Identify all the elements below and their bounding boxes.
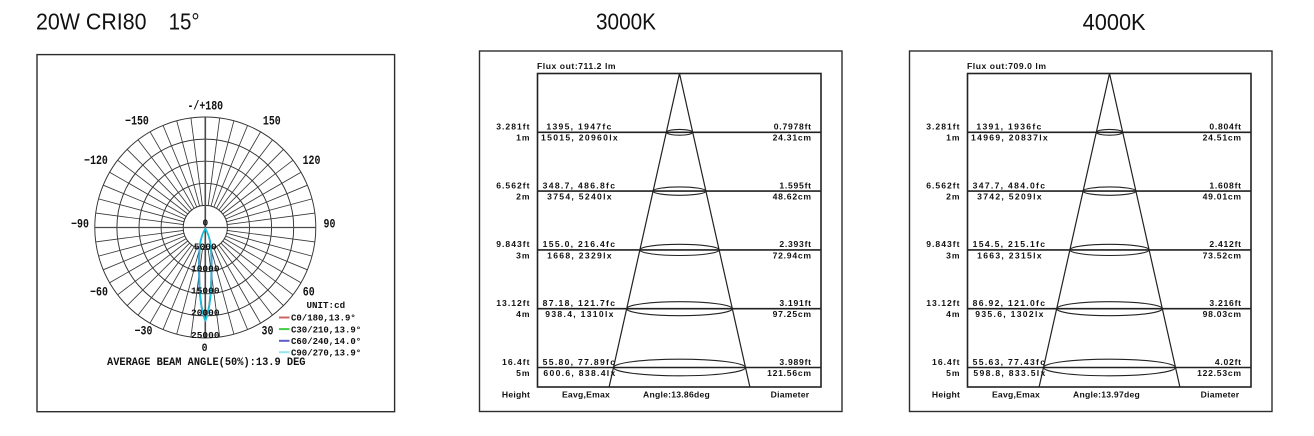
svg-text:6.562ft: 6.562ft [496, 180, 530, 190]
svg-text:1663, 2315lx: 1663, 2315lx [977, 250, 1043, 260]
svg-text:1m: 1m [946, 133, 960, 143]
svg-text:13.12ft: 13.12ft [926, 298, 960, 308]
svg-text:13.12ft: 13.12ft [496, 298, 530, 308]
svg-text:Eavg,Emax: Eavg,Emax [562, 390, 610, 400]
svg-text:Height: Height [502, 390, 530, 400]
svg-text:UNIT:cd: UNIT:cd [307, 300, 346, 311]
svg-text:3.281ft: 3.281ft [496, 122, 530, 132]
svg-text:15015, 20960lx: 15015, 20960lx [541, 133, 619, 143]
svg-text:0: 0 [202, 343, 208, 355]
svg-text:87.18, 121.7fc: 87.18, 121.7fc [543, 298, 617, 308]
svg-text:-/+180: -/+180 [188, 99, 224, 113]
svg-text:154.5, 215.1fc: 154.5, 215.1fc [973, 239, 1047, 249]
svg-text:20000: 20000 [191, 308, 220, 319]
svg-text:86.92, 121.0fc: 86.92, 121.0fc [973, 298, 1047, 308]
svg-text:55.80, 77.89fc: 55.80, 77.89fc [543, 357, 617, 367]
svg-text:−120: −120 [84, 154, 108, 168]
svg-text:3742, 5209lx: 3742, 5209lx [977, 192, 1043, 202]
svg-text:15000: 15000 [191, 286, 220, 297]
svg-text:4m: 4m [516, 309, 530, 319]
svg-text:Diameter: Diameter [1201, 390, 1240, 400]
svg-text:4m: 4m [946, 309, 960, 319]
svg-text:0: 0 [202, 218, 208, 229]
svg-text:2m: 2m [946, 192, 960, 202]
svg-text:5m: 5m [516, 368, 530, 378]
svg-text:122.53cm: 122.53cm [1197, 368, 1242, 378]
svg-text:16.4ft: 16.4ft [932, 357, 960, 367]
svg-text:5000: 5000 [194, 241, 217, 252]
svg-text:1.608ft: 1.608ft [1209, 180, 1241, 190]
svg-text:Eavg,Emax: Eavg,Emax [992, 390, 1040, 400]
svg-text:1391, 1936fc: 1391, 1936fc [976, 122, 1042, 132]
svg-text:3.216ft: 3.216ft [1209, 298, 1241, 308]
svg-text:Flux out:711.2 lm: Flux out:711.2 lm [537, 61, 616, 71]
svg-text:Angle:13.86deg: Angle:13.86deg [643, 390, 710, 400]
svg-text:55.63, 77.43fc: 55.63, 77.43fc [973, 357, 1047, 367]
svg-text:1668, 2329lx: 1668, 2329lx [547, 250, 613, 260]
svg-text:C30/210,13.9°: C30/210,13.9° [291, 325, 361, 335]
svg-text:72.94cm: 72.94cm [773, 250, 812, 260]
svg-text:6.562ft: 6.562ft [926, 180, 960, 190]
svg-text:60: 60 [303, 285, 315, 299]
svg-text:1m: 1m [516, 133, 530, 143]
svg-text:9.843ft: 9.843ft [496, 239, 530, 249]
svg-text:−90: −90 [71, 217, 89, 231]
svg-text:24.51cm: 24.51cm [1203, 133, 1242, 143]
svg-text:73.52cm: 73.52cm [1203, 250, 1242, 260]
svg-text:14969, 20837lx: 14969, 20837lx [971, 133, 1049, 143]
svg-text:5m: 5m [946, 368, 960, 378]
svg-text:Diameter: Diameter [771, 390, 810, 400]
svg-text:16.4ft: 16.4ft [502, 357, 530, 367]
svg-text:0.804ft: 0.804ft [1209, 122, 1241, 132]
svg-text:3.989ft: 3.989ft [779, 357, 811, 367]
svg-text:9.843ft: 9.843ft [926, 239, 960, 249]
svg-text:155.0, 216.4fc: 155.0, 216.4fc [543, 239, 617, 249]
svg-text:3m: 3m [946, 250, 960, 260]
svg-text:120: 120 [303, 154, 321, 168]
svg-text:−150: −150 [125, 114, 149, 128]
svg-text:C60/240,14.0°: C60/240,14.0° [291, 337, 361, 347]
svg-text:AVERAGE BEAM ANGLE(50%):13.9 D: AVERAGE BEAM ANGLE(50%):13.9 DEG [107, 357, 306, 369]
svg-text:4.02ft: 4.02ft [1215, 357, 1242, 367]
svg-text:20W CRI80: 20W CRI80 [36, 8, 147, 34]
svg-text:150: 150 [263, 114, 281, 128]
svg-text:90: 90 [324, 217, 336, 231]
svg-text:−30: −30 [135, 325, 153, 339]
svg-text:24.31cm: 24.31cm [773, 133, 812, 143]
svg-text:30: 30 [262, 325, 274, 339]
svg-text:3000K: 3000K [596, 9, 656, 35]
svg-text:98.03cm: 98.03cm [1203, 309, 1242, 319]
svg-text:1.595ft: 1.595ft [779, 180, 811, 190]
svg-text:48.62cm: 48.62cm [773, 192, 812, 202]
svg-text:C0/180,13.9°: C0/180,13.9° [291, 314, 356, 324]
svg-text:598.8, 833.5lx: 598.8, 833.5lx [973, 368, 1046, 378]
svg-text:−60: −60 [90, 285, 108, 299]
svg-text:1395, 1947fc: 1395, 1947fc [546, 122, 612, 132]
svg-text:10000: 10000 [191, 264, 220, 275]
svg-text:121.56cm: 121.56cm [767, 368, 812, 378]
svg-text:97.25cm: 97.25cm [773, 309, 812, 319]
svg-text:3m: 3m [516, 250, 530, 260]
svg-text:3.191ft: 3.191ft [779, 298, 811, 308]
svg-text:49.01cm: 49.01cm [1203, 192, 1242, 202]
svg-text:3.281ft: 3.281ft [926, 122, 960, 132]
svg-text:347.7, 484.0fc: 347.7, 484.0fc [973, 180, 1047, 190]
svg-text:3754, 5240lx: 3754, 5240lx [547, 192, 613, 202]
svg-text:15°: 15° [169, 8, 200, 34]
svg-text:0.7978ft: 0.7978ft [774, 122, 812, 132]
svg-text:4000K: 4000K [1083, 9, 1146, 35]
svg-text:935.6, 1302lx: 935.6, 1302lx [975, 309, 1044, 319]
svg-text:Flux out:709.0 lm: Flux out:709.0 lm [967, 61, 1047, 71]
svg-text:2.393ft: 2.393ft [779, 239, 811, 249]
svg-text:348.7, 486.8fc: 348.7, 486.8fc [543, 180, 617, 190]
svg-text:Height: Height [932, 390, 960, 400]
svg-text:2m: 2m [516, 192, 530, 202]
svg-text:2.412ft: 2.412ft [1209, 239, 1241, 249]
svg-text:25000: 25000 [191, 330, 220, 341]
svg-text:600.6, 838.4lx: 600.6, 838.4lx [543, 368, 616, 378]
svg-text:938.4, 1310lx: 938.4, 1310lx [545, 309, 614, 319]
svg-text:Angle:13.97deg: Angle:13.97deg [1073, 390, 1140, 400]
